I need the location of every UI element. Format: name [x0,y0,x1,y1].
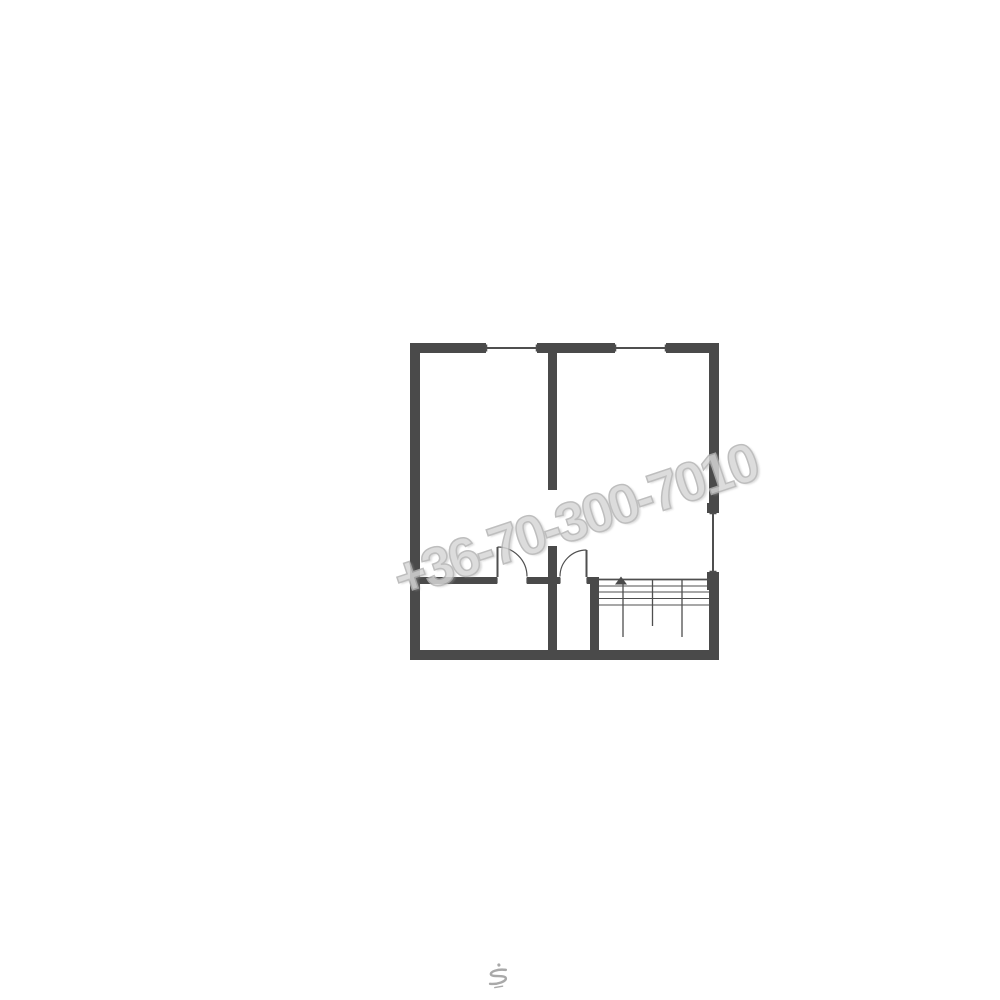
logo-dot [497,963,501,967]
window-top-left [486,345,537,352]
logo-underline [495,986,503,987]
door-jamb-ticks [560,578,587,584]
s-monogram-icon [481,958,519,996]
stair-direction-up-arrow-icon [615,577,627,585]
logo-s-stroke [488,969,508,985]
window-top-right [615,345,666,352]
staircase [599,577,710,638]
plan-linework [0,0,1000,1000]
floor-plan-canvas: +36-70-300-7010 [0,0,1000,1000]
window-right-wall [710,513,717,572]
